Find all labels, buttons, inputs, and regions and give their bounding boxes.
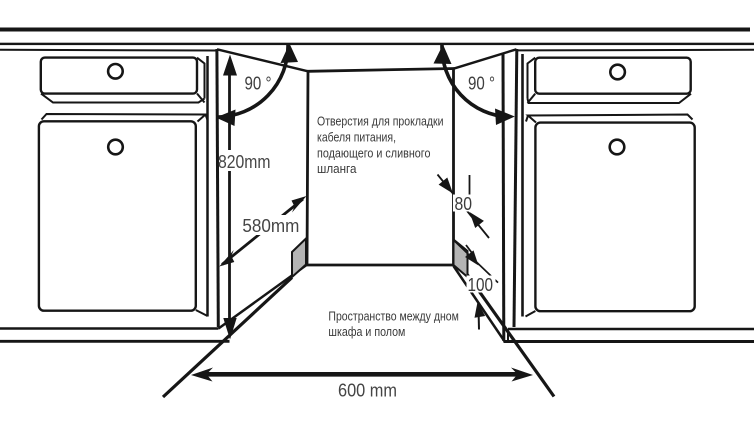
svg-text:820mm: 820mm bbox=[218, 151, 271, 172]
svg-text:90 °: 90 ° bbox=[245, 73, 272, 94]
svg-text:шланга: шланга bbox=[317, 161, 357, 176]
svg-text:100: 100 bbox=[468, 274, 494, 295]
svg-text:90 °: 90 ° bbox=[468, 73, 495, 94]
svg-text:Пространство между дном: Пространство между дном bbox=[328, 309, 459, 324]
svg-text:80: 80 bbox=[455, 193, 473, 214]
svg-text:Отверстия для прокладки: Отверстия для прокладки bbox=[317, 114, 444, 129]
svg-text:шкафа и полом: шкафа и полом bbox=[328, 324, 405, 339]
svg-text:подающего и сливного: подающего и сливного bbox=[317, 145, 431, 160]
svg-text:580mm: 580mm bbox=[242, 215, 299, 236]
svg-text:кабеля питания,: кабеля питания, bbox=[317, 129, 396, 144]
svg-text:600 mm: 600 mm bbox=[338, 381, 397, 401]
